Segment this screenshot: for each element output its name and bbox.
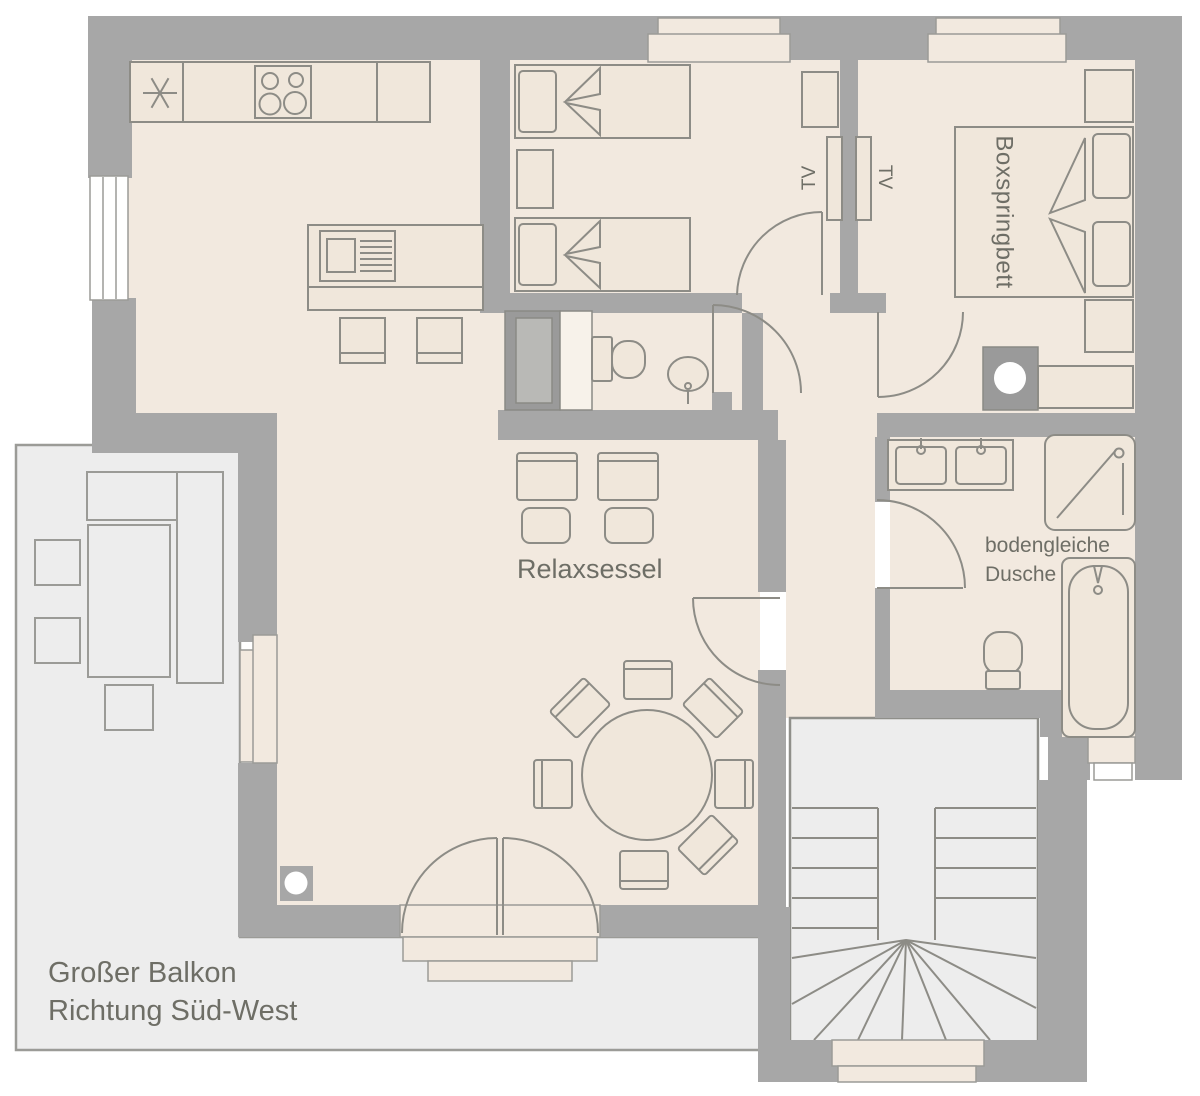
- wall-left-upper: [88, 16, 132, 178]
- sofa-side: [177, 472, 223, 683]
- stove-icon: [255, 66, 311, 118]
- stair-window-sill2: [838, 1066, 976, 1082]
- toilet-icon: [592, 337, 645, 381]
- bench: [1038, 366, 1133, 408]
- washing-machine-icon: [983, 347, 1038, 410]
- tub-window-sill: [1088, 737, 1135, 763]
- dining-chair: [620, 851, 668, 889]
- wall-kids-west: [480, 60, 510, 293]
- wall-pier-wc: [712, 392, 732, 410]
- wall-jog: [92, 413, 277, 453]
- balcony-door-south-sill1: [403, 937, 597, 961]
- dining-chair: [624, 661, 672, 699]
- wall-t-foot: [830, 293, 886, 313]
- relax-chair: [517, 453, 577, 500]
- balcony-door-west-inner: [253, 635, 277, 763]
- wall-wc-east: [742, 313, 763, 410]
- island-bar: [308, 287, 483, 310]
- tv-panel-right: [856, 137, 871, 220]
- bar-stool: [417, 318, 462, 363]
- label-relaxsessel: Relaxsessel: [517, 554, 663, 584]
- balcony-chair: [35, 618, 80, 663]
- floor-plan-canvas: Boxspringbett TV TV Relaxsessel bodengle…: [0, 0, 1200, 1096]
- corridor-floor: [786, 440, 875, 718]
- floor-plan: Boxspringbett TV TV Relaxsessel bodengle…: [0, 0, 1200, 1096]
- label-master-bed: Boxspringbett: [991, 135, 1018, 288]
- relax-chair: [598, 453, 658, 500]
- wall-east-living-lower: [758, 670, 786, 907]
- label-shower-1: bodengleiche: [985, 534, 1110, 557]
- wall-east-living-upper: [758, 440, 786, 592]
- column: [280, 866, 313, 901]
- bathtub-icon: [1062, 558, 1135, 737]
- double-bed: [955, 127, 1133, 297]
- dresser: [802, 72, 838, 127]
- wall-right: [1135, 16, 1182, 780]
- balcony-chair: [35, 540, 80, 585]
- wall-bath-north: [877, 413, 1140, 437]
- label-balcony-1: Großer Balkon: [48, 957, 237, 989]
- wall-kids-south: [480, 293, 742, 313]
- dining-chair: [715, 760, 753, 808]
- label-tv-left: TV: [799, 166, 820, 191]
- label-shower-2: Dusche: [985, 563, 1056, 586]
- wall-bath-south: [875, 690, 1050, 718]
- toilet-icon: [984, 632, 1022, 689]
- footstool: [605, 508, 653, 543]
- dining-chair: [534, 760, 572, 808]
- shaft-inner: [516, 318, 552, 403]
- single-bed: [515, 218, 690, 291]
- label-balcony-2: Richtung Süd-West: [48, 995, 297, 1027]
- dining-table: [582, 710, 712, 840]
- tub-window: [1094, 763, 1132, 780]
- wall-west-living-upper: [238, 453, 277, 642]
- stair-floor: [790, 718, 1038, 1042]
- wall-left-mid: [92, 298, 136, 415]
- window-master-inner: [928, 34, 1066, 62]
- lounge-table: [88, 525, 170, 677]
- nightstand: [1085, 70, 1133, 122]
- wall-tub-south: [1048, 737, 1090, 780]
- wall-tub-jog: [1040, 690, 1062, 737]
- balcony-door-south-opening: [400, 905, 600, 937]
- wall-mid-horizontal: [498, 410, 778, 440]
- window-kids-inner: [648, 34, 790, 62]
- balcony-door-west-outer: [240, 650, 254, 762]
- single-bed: [515, 65, 690, 138]
- label-tv-right: TV: [874, 165, 895, 190]
- window-kitchen-west: [90, 176, 128, 300]
- duct: [560, 311, 592, 410]
- bar-stool: [340, 318, 385, 363]
- stair-window-sill1: [832, 1040, 984, 1066]
- nightstand: [517, 150, 553, 208]
- balcony-door-south-sill2: [428, 961, 572, 981]
- balcony-stool: [105, 685, 153, 730]
- footstool: [522, 508, 570, 543]
- tv-panel-left: [827, 137, 842, 220]
- nightstand: [1085, 300, 1133, 352]
- floor-strip: [480, 313, 505, 415]
- wall-stair-east: [1038, 780, 1087, 1082]
- staircase: [790, 718, 1038, 1042]
- wall-west-living-lower: [238, 763, 277, 907]
- shower-icon: [1045, 435, 1135, 530]
